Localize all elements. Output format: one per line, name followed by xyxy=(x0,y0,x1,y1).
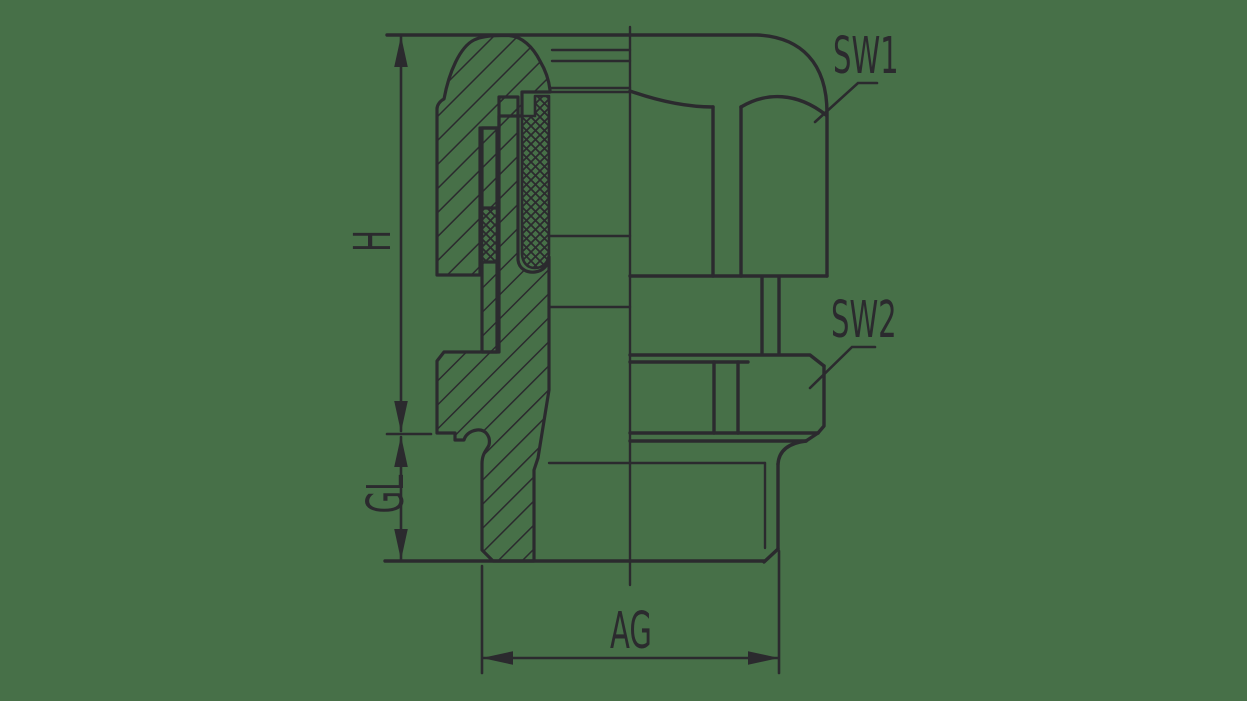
dimension-ag-label: AG xyxy=(610,600,652,660)
dimension-h-label: H xyxy=(342,230,402,252)
cap-skirt-section-lower xyxy=(482,262,497,352)
technical-drawing-canvas: H GL AG SW1 SW2 xyxy=(0,0,1247,701)
cap-shoulder-curve-right xyxy=(741,97,826,115)
gasket-section xyxy=(482,208,497,262)
cable-gland-section-drawing: H GL AG SW1 SW2 xyxy=(0,0,1247,701)
cap-shoulder-curve-left xyxy=(630,91,713,107)
dimension-gl: GL xyxy=(355,436,415,560)
dimension-gl-label: GL xyxy=(355,475,415,514)
internal-bore-edges xyxy=(549,50,630,307)
cap-skirt-section-upper xyxy=(482,128,497,208)
callout-sw1-label: SW1 xyxy=(833,25,899,85)
hex-nut xyxy=(630,355,824,441)
section-view-left xyxy=(437,36,630,562)
seal-insert-section xyxy=(522,96,549,268)
dimension-h: H xyxy=(342,36,431,434)
connection-thread xyxy=(549,441,806,562)
sw2-leader-line xyxy=(810,347,875,388)
callout-sw2-label: SW2 xyxy=(831,289,897,349)
